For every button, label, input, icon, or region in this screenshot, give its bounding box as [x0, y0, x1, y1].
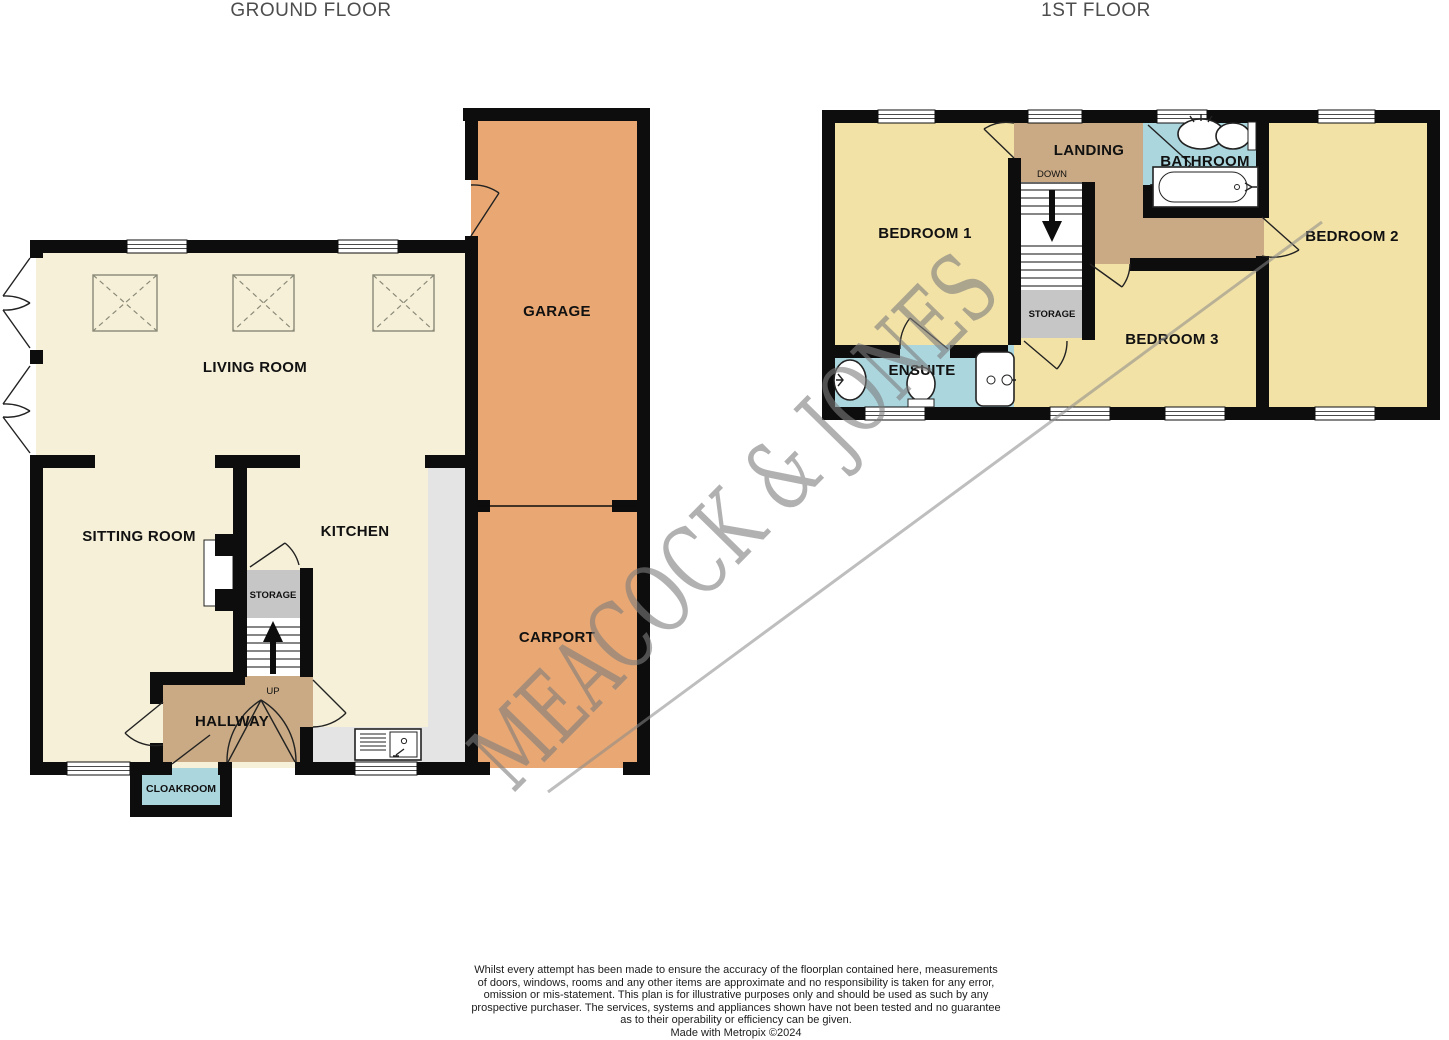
bifold-door-icon — [3, 258, 30, 453]
down-arrow-icon — [1049, 190, 1055, 222]
disclaimer-line: prospective purchaser. The services, sys… — [360, 1002, 1112, 1015]
storage-first-label: STORAGE — [1029, 309, 1076, 320]
disclaimer-line: of doors, windows, rooms and any other i… — [360, 977, 1112, 990]
up-arrow-icon — [270, 640, 276, 674]
window-icon — [67, 762, 130, 775]
disclaimer-line: Whilst every attempt has been made to en… — [360, 964, 1112, 977]
storage-ground-label: STORAGE — [250, 590, 297, 601]
kitchen-sink-icon — [355, 729, 421, 760]
fireplace — [204, 534, 233, 611]
garage-label: GARAGE — [523, 303, 591, 320]
disclaimer-line: as to their operability or efficiency ca… — [360, 1014, 1112, 1027]
sitting-room-label: SITTING ROOM — [82, 528, 196, 545]
window-icon — [1028, 110, 1082, 123]
landing-label: LANDING — [1054, 142, 1124, 159]
disclaimer-line: omission or mis-statement. This plan is … — [360, 989, 1112, 1002]
bathroom-label: BATHROOM — [1160, 153, 1250, 170]
bathroom-toilet-icon — [1216, 122, 1256, 150]
window-icon — [355, 762, 417, 775]
window-icon — [1050, 407, 1110, 420]
window-icon — [1165, 407, 1225, 420]
window-icon — [878, 110, 935, 123]
window-icon — [1318, 110, 1375, 123]
bedroom2-label: BEDROOM 2 — [1305, 228, 1399, 245]
stairs-down-label: DOWN — [1037, 169, 1067, 180]
room-living-room — [36, 246, 472, 462]
stairs-up-label: UP — [266, 686, 279, 697]
disclaimer-credit: Made with Metropix ©2024 — [360, 1027, 1112, 1040]
bath-icon — [1153, 167, 1258, 207]
shower-icon — [976, 352, 1016, 406]
window-icon — [338, 240, 398, 253]
kitchen-counter-right — [428, 468, 465, 727]
kitchen-label: KITCHEN — [321, 523, 390, 540]
floorplan-canvas: LIVING ROOM SITTING ROOM KITCHEN GARAGE … — [0, 0, 1449, 1040]
disclaimer: Whilst every attempt has been made to en… — [360, 964, 1112, 1040]
window-icon — [1315, 407, 1375, 420]
cloakroom-label: CLOAKROOM — [146, 783, 216, 795]
living-room-label: LIVING ROOM — [203, 359, 307, 376]
hallway-label: HALLWAY — [195, 713, 269, 730]
floorplan-page: GROUND FLOOR 1ST FLOOR — [0, 0, 1449, 1040]
window-icon — [127, 240, 187, 253]
bedroom1-label: BEDROOM 1 — [878, 225, 972, 242]
